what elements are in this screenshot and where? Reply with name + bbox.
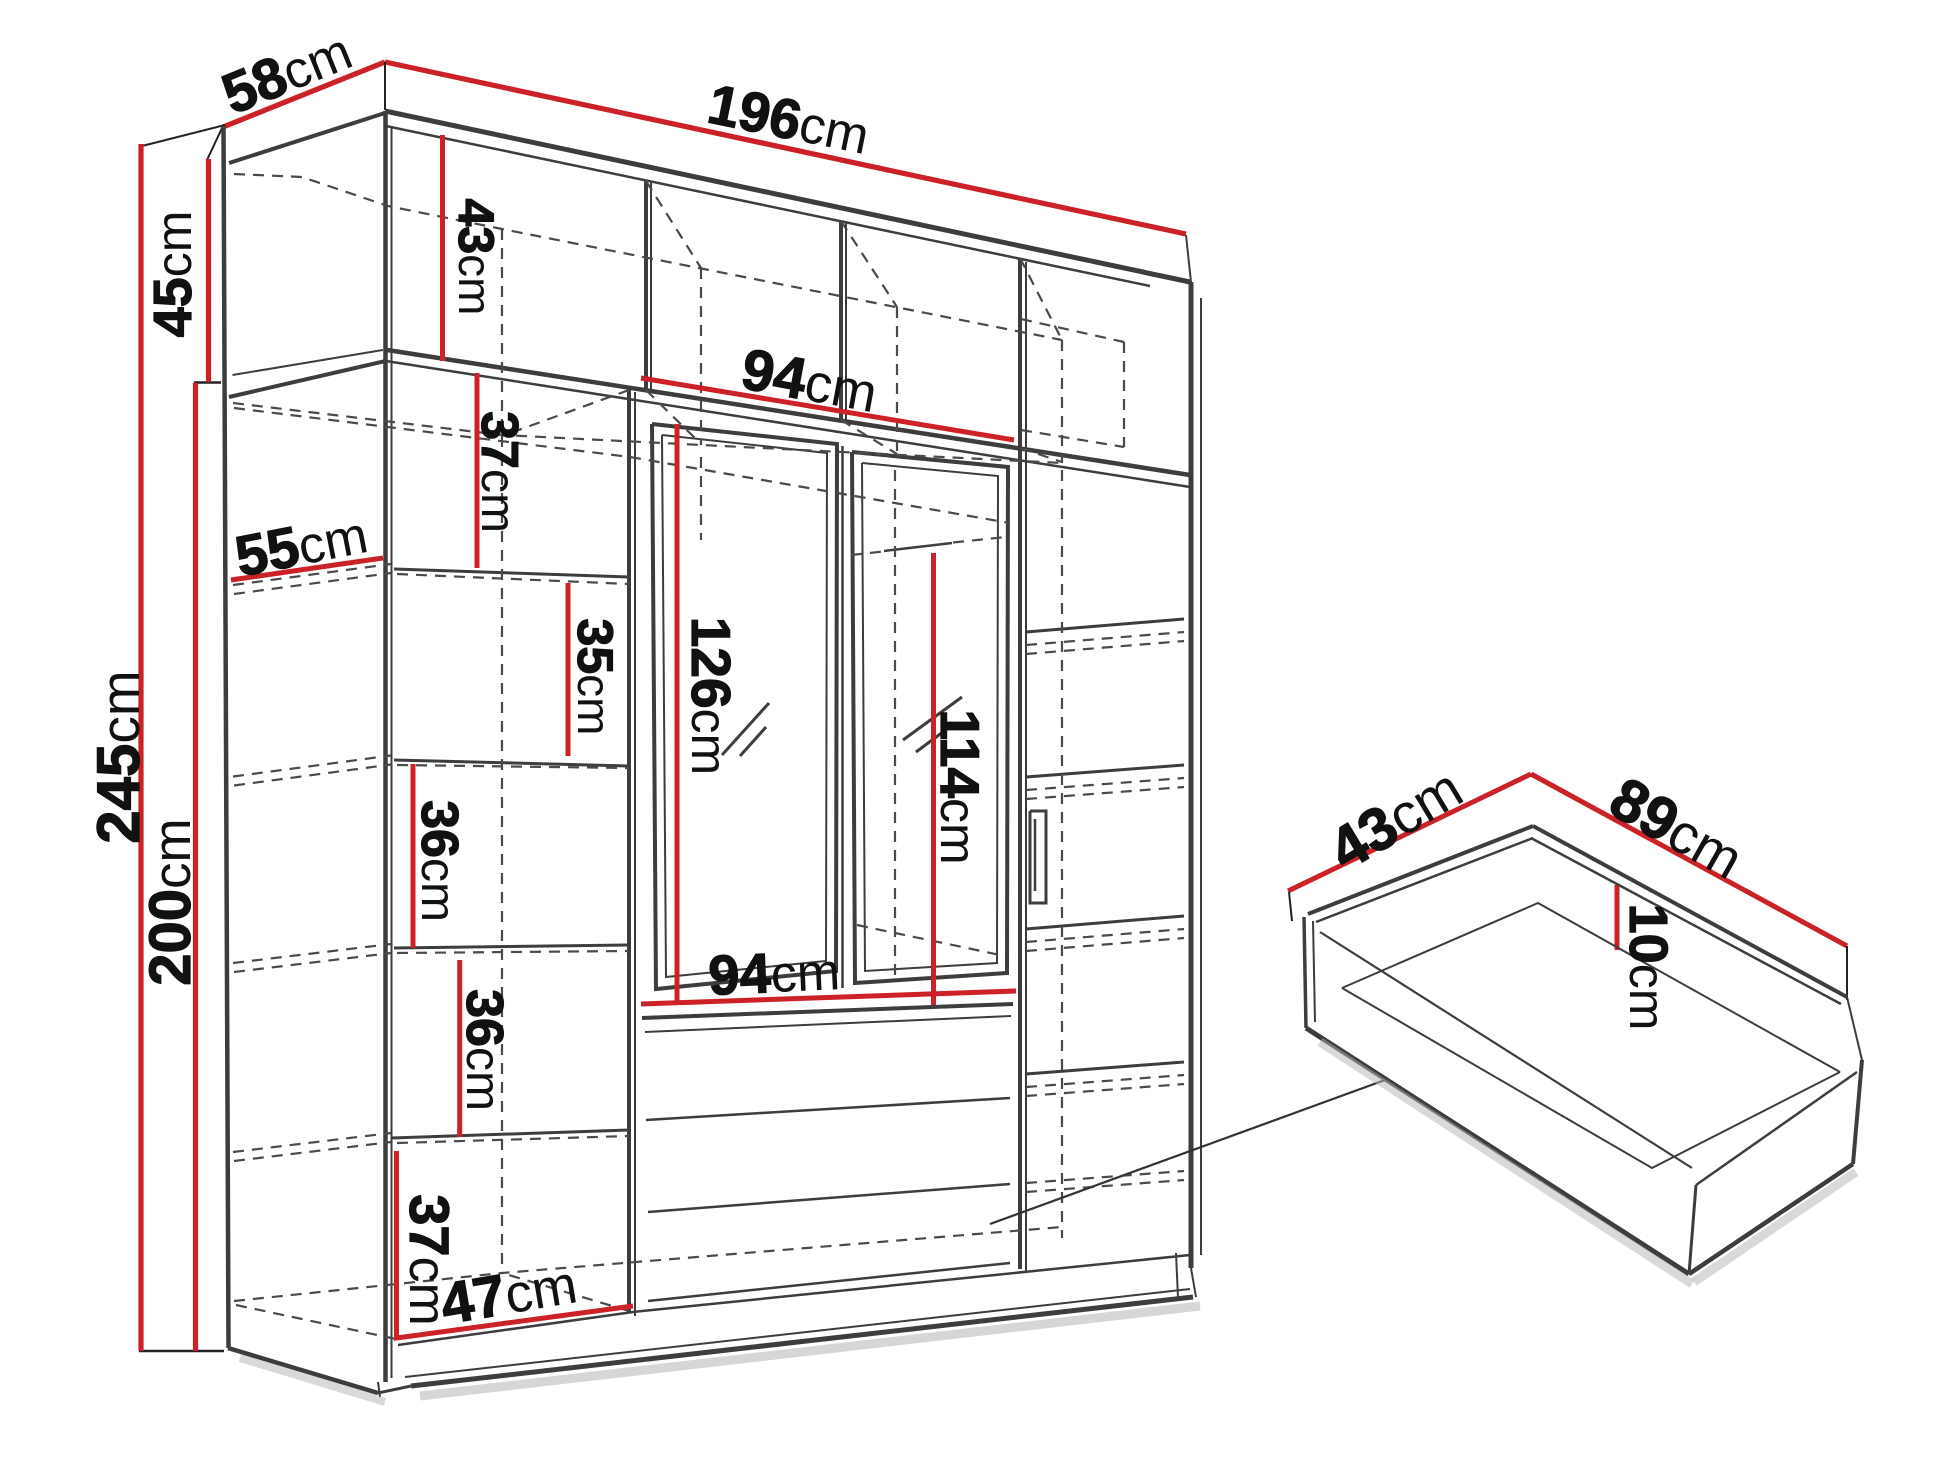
svg-text:45cm: 45cm bbox=[143, 211, 203, 338]
svg-text:36cm: 36cm bbox=[455, 989, 513, 1111]
svg-text:200cm: 200cm bbox=[138, 818, 203, 985]
svg-text:94cm: 94cm bbox=[707, 938, 841, 1007]
svg-text:114cm: 114cm bbox=[929, 709, 991, 864]
svg-text:43cm: 43cm bbox=[448, 199, 504, 316]
svg-text:35cm: 35cm bbox=[567, 619, 623, 736]
svg-text:245cm: 245cm bbox=[85, 670, 152, 843]
svg-text:37cm: 37cm bbox=[398, 1194, 461, 1326]
svg-text:126cm: 126cm bbox=[680, 617, 742, 775]
svg-text:36cm: 36cm bbox=[410, 800, 468, 922]
svg-text:37cm: 37cm bbox=[470, 411, 528, 533]
svg-text:10cm: 10cm bbox=[1618, 904, 1678, 1031]
